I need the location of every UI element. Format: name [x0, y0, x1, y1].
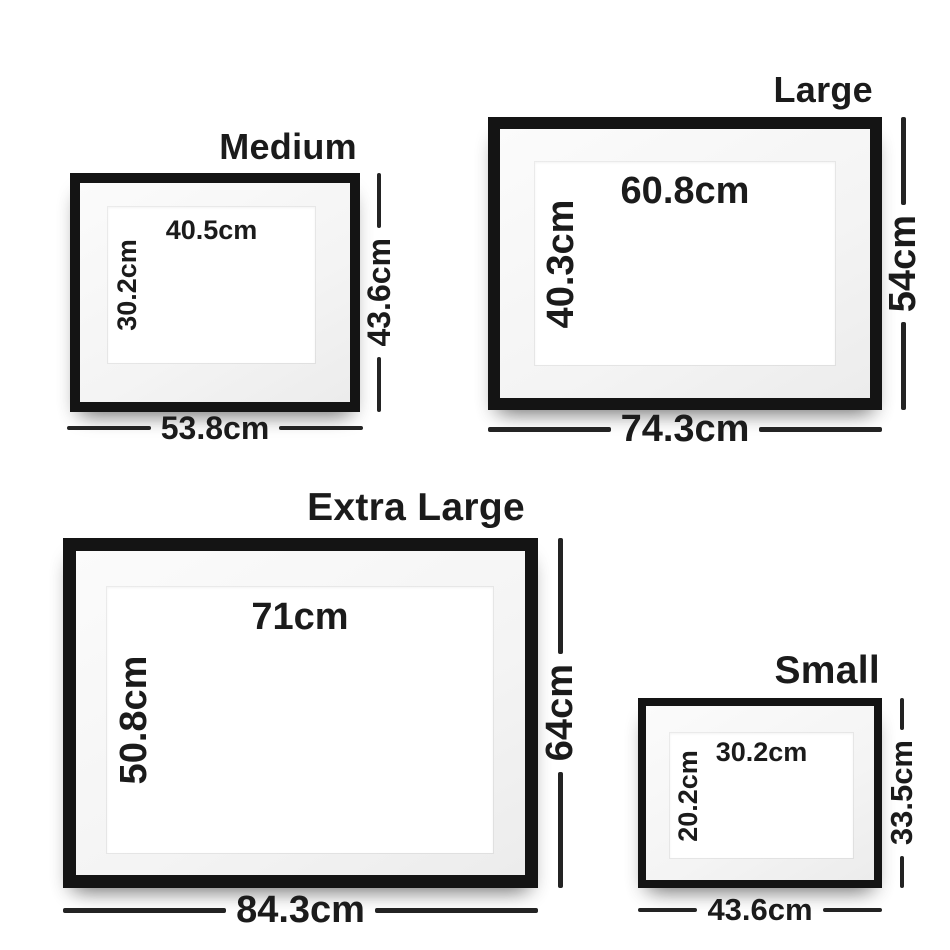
frame-mat: 71cm 50.8cm: [76, 551, 525, 875]
frame-mat: 60.8cm 40.3cm: [500, 129, 870, 398]
frame-width-value: 84.3cm: [236, 889, 365, 932]
print-height-label: 40.3cm: [540, 199, 583, 328]
frame-height-dimension: 43.6cm: [357, 173, 401, 412]
frame-height-dimension: 54cm: [881, 117, 925, 410]
frame-height-value: 43.6cm: [361, 238, 398, 347]
frame-size-title: Extra Large: [63, 487, 525, 530]
print-width-label: 71cm: [107, 596, 493, 639]
frame-height-value: 54cm: [882, 215, 925, 312]
dimension-line-bottom: [377, 357, 381, 412]
dimension-line-top: [558, 538, 563, 654]
frame-mat: 30.2cm 20.2cm: [646, 706, 874, 880]
frame-mat: 40.5cm 30.2cm: [80, 183, 350, 402]
frame-size-title: Medium: [70, 127, 357, 167]
picture-frame: 60.8cm 40.3cm: [488, 117, 882, 410]
frame-opening: 40.5cm 30.2cm: [108, 207, 315, 363]
frame-width-dimension: 53.8cm: [67, 408, 363, 448]
frame-opening: 60.8cm 40.3cm: [535, 162, 835, 365]
frame-width-dimension: 43.6cm: [638, 890, 882, 930]
frame-height-value: 33.5cm: [884, 740, 920, 845]
frame-size-title: Large: [488, 70, 873, 110]
dimension-line-top: [377, 173, 381, 228]
dimension-line-left: [488, 427, 611, 432]
frame-width-value: 74.3cm: [621, 408, 750, 451]
frame-height-dimension: 33.5cm: [880, 698, 924, 888]
dimension-line-top: [900, 698, 904, 730]
frame-height-value: 64cm: [539, 664, 582, 761]
dimension-line-bottom: [558, 772, 563, 888]
frame-height-dimension: 64cm: [538, 538, 582, 888]
frame-width-value: 53.8cm: [161, 410, 270, 447]
frame-width-dimension: 84.3cm: [63, 889, 538, 931]
frame-opening: 71cm 50.8cm: [107, 587, 493, 853]
dimension-line-bottom: [900, 856, 904, 888]
frame-width-value: 43.6cm: [707, 892, 812, 928]
size-guide-canvas: Medium 40.5cm 30.2cm 43.6cm 53.8cm Large: [0, 0, 950, 950]
dimension-line-right: [279, 426, 363, 430]
frame-size-title: Small: [638, 650, 880, 693]
print-height-label: 30.2cm: [112, 239, 143, 331]
picture-frame: 30.2cm 20.2cm: [638, 698, 882, 888]
dimension-line-left: [638, 908, 697, 912]
dimension-line-left: [67, 426, 151, 430]
dimension-line-right: [759, 427, 882, 432]
frame-opening: 30.2cm 20.2cm: [670, 733, 853, 858]
picture-frame: 40.5cm 30.2cm: [70, 173, 360, 412]
dimension-line-right: [375, 908, 538, 913]
dimension-line-left: [63, 908, 226, 913]
dimension-line-right: [823, 908, 882, 912]
frame-width-dimension: 74.3cm: [488, 408, 882, 450]
print-height-label: 50.8cm: [113, 656, 156, 785]
print-height-label: 20.2cm: [673, 750, 704, 842]
dimension-line-top: [901, 117, 906, 205]
picture-frame: 71cm 50.8cm: [63, 538, 538, 888]
dimension-line-bottom: [901, 322, 906, 410]
